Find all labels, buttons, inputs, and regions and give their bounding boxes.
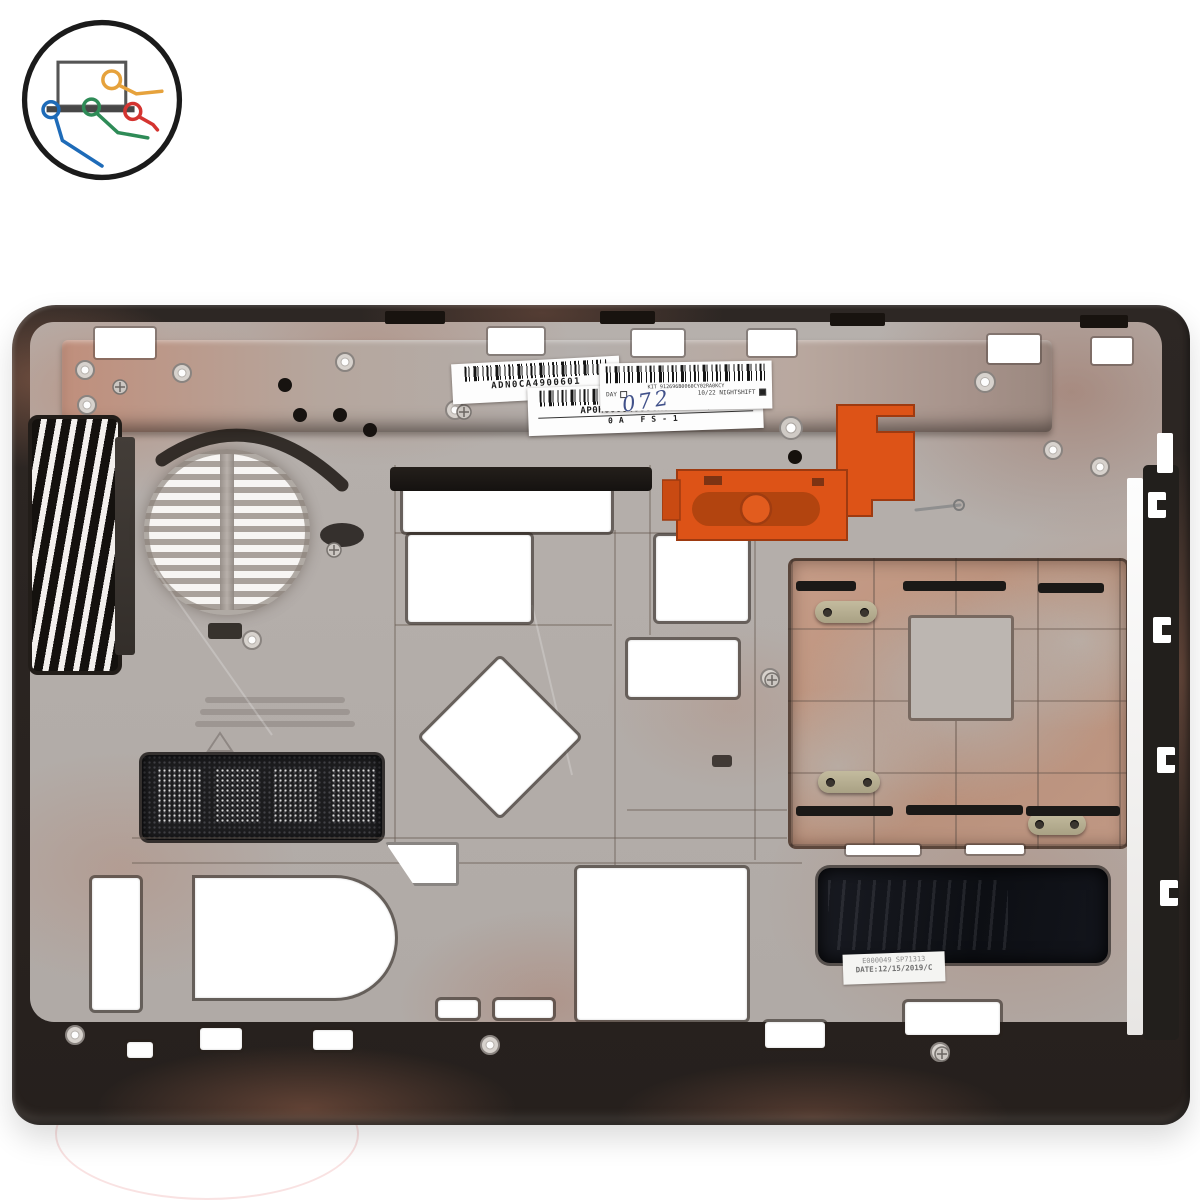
rim-slot <box>313 1030 353 1050</box>
port-cutout <box>1160 880 1178 906</box>
latch-detail <box>812 478 824 486</box>
embossed-part-text-smudge <box>195 697 355 751</box>
latch-slider-channel <box>390 467 652 491</box>
dark-recess <box>712 755 732 767</box>
barcode-3 <box>606 364 766 384</box>
side-wall-slot <box>1127 478 1143 1035</box>
dark-recess <box>320 523 364 547</box>
laptop-with-cables-icon <box>14 12 190 188</box>
cutout-window <box>92 878 140 1010</box>
alignment-post <box>788 450 802 464</box>
product-photo-page: ADN0CA4900601 AP0HO0004000CK000737YQ 0A … <box>0 0 1200 1200</box>
date-stamp-label: E000049 SP71313 DATE:12/15/2019/C <box>843 951 946 985</box>
laptop-bottom-case: ADN0CA4900601 AP0HO0004000CK000737YQ 0A … <box>12 305 1190 1125</box>
recycle-triangle-icon <box>208 733 232 751</box>
port-cutout <box>1148 492 1166 518</box>
rim-slot <box>495 1000 553 1018</box>
latch-knob <box>741 494 771 524</box>
latch-step <box>662 480 680 520</box>
cutout-window <box>408 535 531 622</box>
rim-slot <box>765 1022 825 1048</box>
port-cutout <box>1153 617 1171 643</box>
cutout-window <box>577 868 747 1020</box>
screw-boss-center <box>786 423 796 433</box>
dark-recess <box>208 623 242 639</box>
port-cutout <box>1157 747 1175 773</box>
latch-vertical-plate <box>837 405 914 516</box>
rim-slot <box>200 1028 242 1050</box>
kit-shift-text: 10/22 NIGHTSHIFT <box>698 389 767 397</box>
rim-slot <box>127 1042 153 1058</box>
cutout-stadium <box>195 878 395 998</box>
cutout-window <box>628 640 738 697</box>
nightshift-checkbox <box>759 389 766 396</box>
rim-slot <box>905 1002 1000 1035</box>
cable-routing-shadow <box>162 435 342 485</box>
cutout-slot <box>403 487 611 532</box>
latch-detail <box>704 476 722 485</box>
rim-slot <box>438 1000 478 1018</box>
port-cutout <box>1157 433 1173 473</box>
